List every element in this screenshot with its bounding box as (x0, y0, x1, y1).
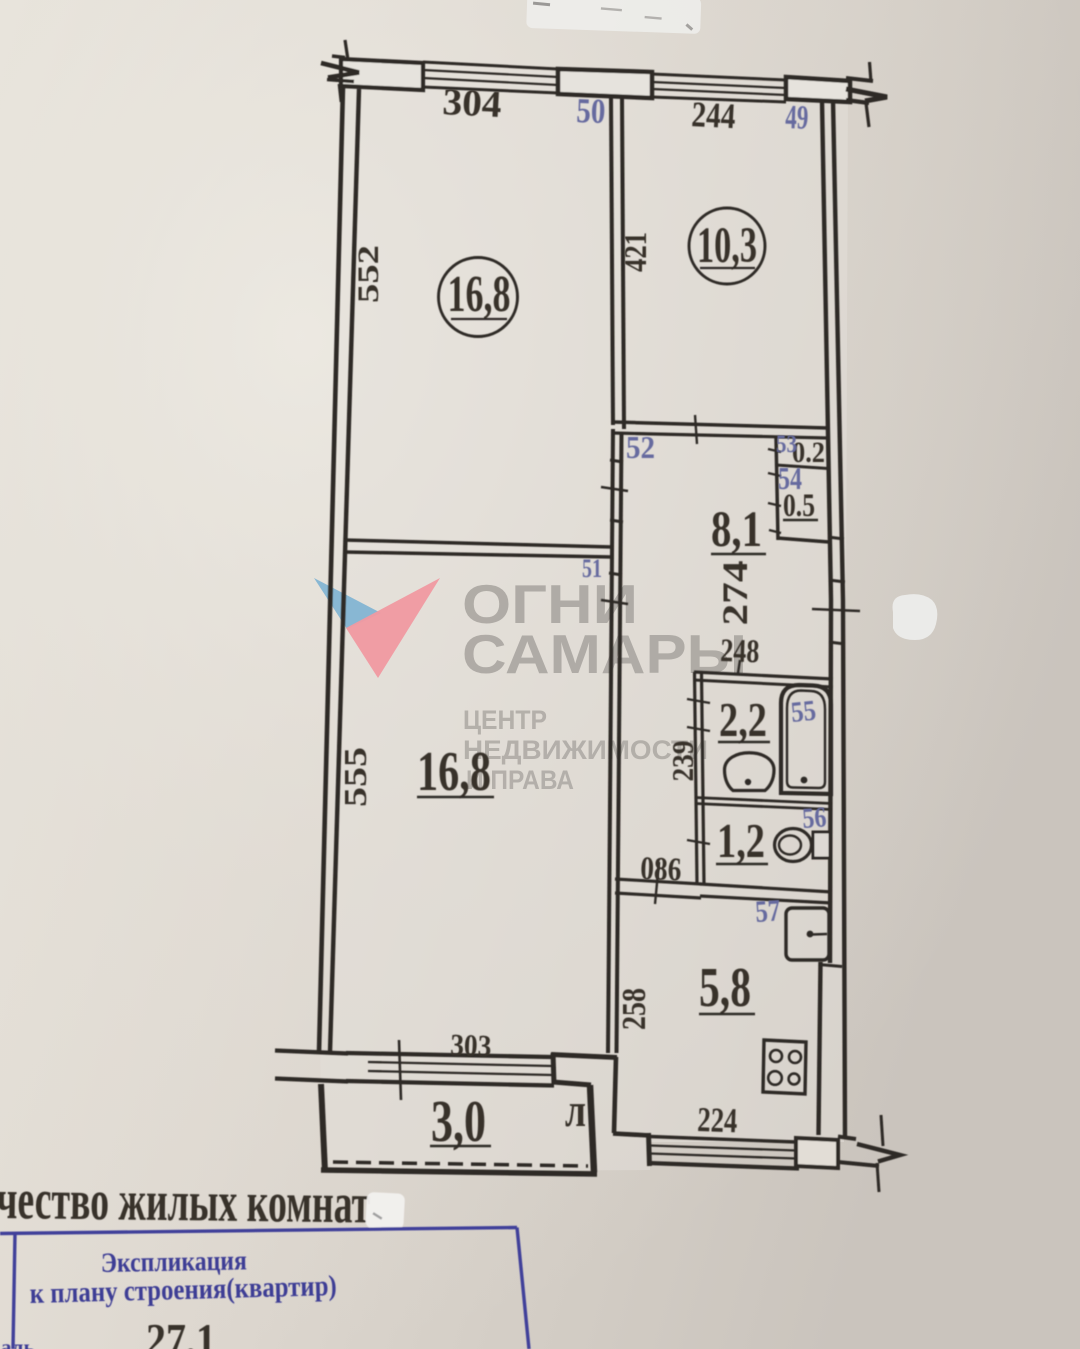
svg-text:аль: аль (1, 1335, 35, 1349)
svg-text:57: 57 (754, 892, 781, 929)
svg-text:552: 552 (352, 245, 385, 303)
svg-text:16,8: 16,8 (448, 266, 511, 323)
svg-text:л: л (565, 1084, 586, 1137)
svg-text:304: 304 (442, 81, 503, 126)
svg-text:421: 421 (617, 232, 653, 272)
svg-text:50: 50 (576, 91, 606, 131)
svg-text:8,1: 8,1 (711, 502, 762, 558)
svg-text:555: 555 (337, 747, 373, 807)
svg-text:56: 56 (801, 801, 827, 835)
svg-text:54: 54 (778, 460, 802, 496)
svg-text:248: 248 (720, 633, 760, 670)
svg-text:55: 55 (789, 695, 817, 729)
svg-text:53: 53 (776, 431, 797, 458)
svg-text:224: 224 (697, 1100, 738, 1140)
svg-text:239: 239 (665, 741, 700, 782)
svg-text:086: 086 (640, 851, 682, 888)
svg-text:258: 258 (616, 988, 653, 1030)
svg-text:10,3: 10,3 (697, 218, 757, 274)
svg-text:274: 274 (715, 561, 755, 626)
svg-text:5,8: 5,8 (699, 957, 751, 1019)
svg-text:2,2: 2,2 (719, 692, 767, 747)
svg-text:16,8: 16,8 (417, 741, 491, 803)
svg-text:52: 52 (626, 429, 655, 465)
svg-text:САМАРЫ: САМАРЫ (462, 623, 747, 685)
svg-text:3,0: 3,0 (431, 1088, 486, 1154)
svg-text:27,1: 27,1 (146, 1314, 216, 1349)
svg-text:244: 244 (691, 94, 737, 136)
svg-text:ЦЕНТР: ЦЕНТР (463, 705, 547, 735)
svg-text:чество жилых комнат: чество жилых комнат (0, 1168, 371, 1236)
svg-text:303: 303 (450, 1027, 492, 1063)
svg-text:49: 49 (785, 99, 809, 137)
svg-text:51: 51 (582, 554, 602, 583)
svg-text:1,2: 1,2 (717, 813, 765, 868)
